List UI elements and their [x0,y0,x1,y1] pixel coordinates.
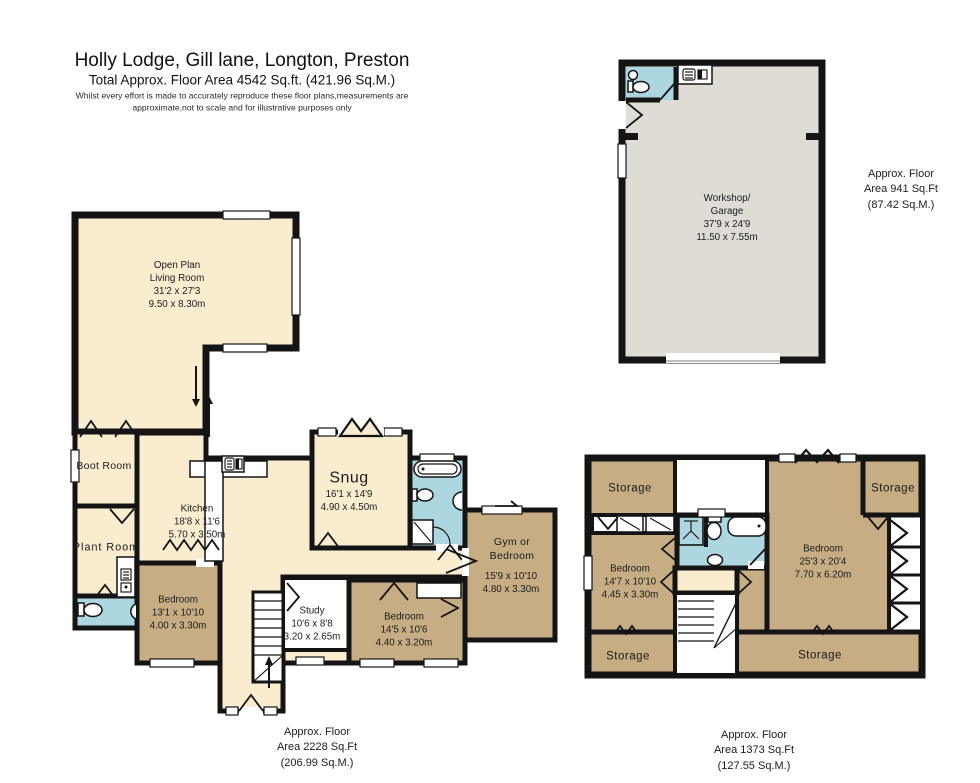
floorplan-page: Holly Lodge, Gill lane, Longton, Preston… [0,0,980,783]
entry-arrow [495,501,517,506]
area-note-workshop: Approx. Floor Area 941 Sq.Ft (87.42 Sq.M… [864,167,938,213]
window [618,144,626,178]
room-label-bedroom-left: Bedroom 14'7 x 10'10 4.45 x 3.30m [602,564,659,603]
room-label-snug-dims: 16'1 x 14'9 4.90 x 4.50m [321,489,378,515]
room-label-storage-tr: Storage [871,481,915,496]
sink-icon [708,555,723,566]
stairs-ground [253,592,283,688]
window [584,556,592,590]
room-label-open-plan: Open Plan Living Room 31'2 x 27'3 9.50 x… [149,260,206,312]
room-label-storage-bl: Storage [606,649,650,664]
room-label-workshop-garage: Workshop/ Garage 37'9 x 24'9 11.50 x 7.5… [696,193,757,245]
boiler-icon [678,65,712,84]
hall-top [675,458,767,515]
room-label-gym: Gym or Bedroom [490,536,535,564]
door-opening [618,101,626,129]
room-label-plant-room: Plant Room [73,541,139,556]
disclaimer: Whilst every effort is made to accuratel… [76,90,409,113]
room-label-bedroom2: Bedroom 14'5 x 10'6 4.40 x 3.20m [376,612,433,651]
workshop-wc [626,67,676,100]
toilet-icon [628,81,633,92]
area-note-ground: Approx. Floor Area 2228 Sq.Ft (206.99 Sq… [277,725,357,771]
stove-icon [222,456,244,472]
page-title: Holly Lodge, Gill lane, Longton, Preston [75,50,410,72]
landing [675,568,737,593]
room-label-bedroom-right: Bedroom 25'3 x 20'4 7.70 x 6.20m [795,544,852,583]
room-living [75,215,296,432]
room-label-bedroom1: Bedroom 13'1 x 10'10 4.00 x 3.30m [150,595,207,634]
room-label-gym-dims: 15'9 x 10'10 4.80 x 3.30m [483,571,540,597]
room-label-boot-room: Boot Room [76,460,131,474]
room-label-study: Study 10'6 x 8'8 3.20 x 2.65m [284,606,341,645]
bathtub-icon [414,461,461,477]
floorplan-canvas [0,0,980,783]
room-label-storage-br: Storage [798,648,842,663]
bay-window [340,419,382,436]
room-label-snug: Snug [329,467,368,488]
stairwell [675,593,737,675]
toilet-icon [78,603,84,616]
area-note-first: Approx. Floor Area 1373 Sq.Ft (127.55 Sq… [714,728,794,774]
room-label-kitchen: Kitchen 18'8 x 11'6 5.70 x 3.50m [169,504,226,543]
sink-icon [629,71,638,80]
plant-boiler-icon [117,557,135,597]
page-subtitle: Total Approx. Floor Area 4542 Sq.ft. (42… [89,73,395,88]
closets [617,516,674,532]
room-label-storage-tl: Storage [608,481,652,496]
